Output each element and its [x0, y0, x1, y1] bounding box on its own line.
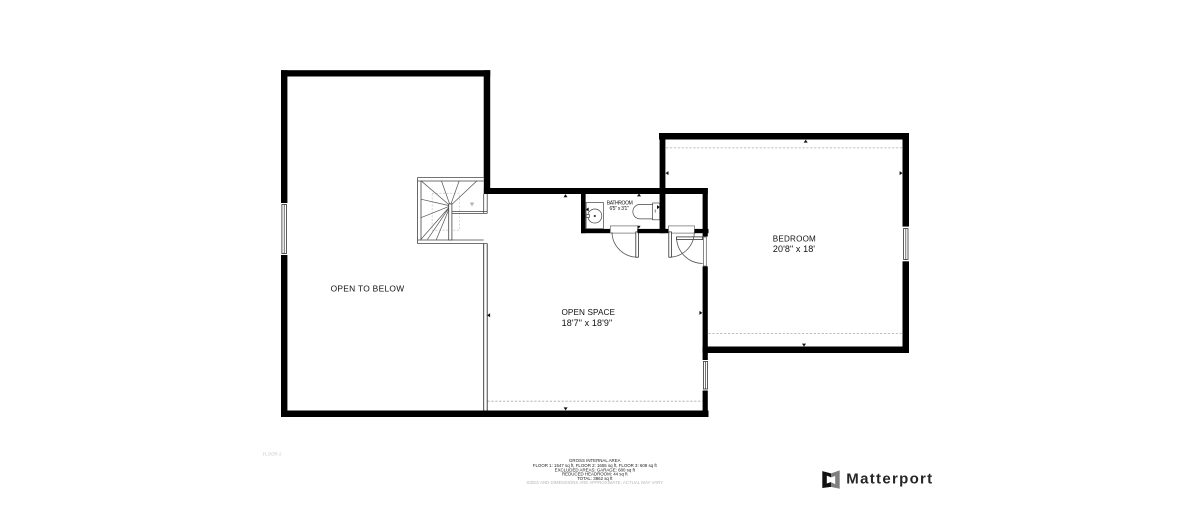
svg-text:BEDROOM: BEDROOM	[773, 235, 816, 244]
svg-text:SIZES AND DIMENSIONS ARE APPRO: SIZES AND DIMENSIONS ARE APPROXIMATE, AC…	[526, 480, 663, 485]
svg-text:6'5" x 3'1": 6'5" x 3'1"	[609, 206, 629, 212]
svg-text:18'7" x 18'9": 18'7" x 18'9"	[562, 318, 613, 328]
svg-text:20'8" x 18': 20'8" x 18'	[773, 244, 815, 254]
svg-text:FLOOR 2: FLOOR 2	[263, 452, 282, 457]
svg-text:OPEN TO BELOW: OPEN TO BELOW	[331, 284, 405, 294]
svg-text:Matterport: Matterport	[846, 471, 933, 488]
svg-text:OPEN SPACE: OPEN SPACE	[561, 308, 615, 317]
